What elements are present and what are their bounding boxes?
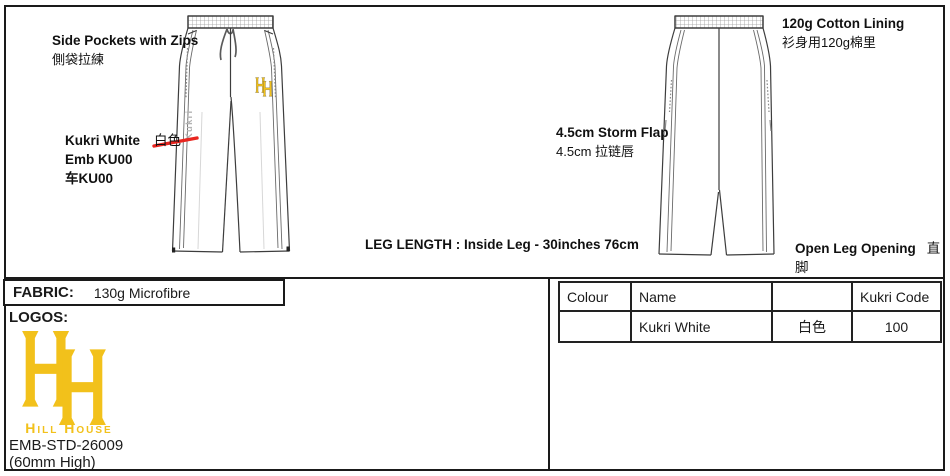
colour-table-header-name: Name xyxy=(632,283,773,312)
colour-name-cell: Kukri White xyxy=(632,312,773,341)
brand-name: Hill House xyxy=(22,420,116,436)
embroidery-colour-line3: 车KU00 xyxy=(65,169,181,188)
fabric-label: FABRIC: xyxy=(13,284,74,301)
annotation-storm-flap-en: 4.5cm Storm Flap xyxy=(556,123,669,142)
annotation-storm-flap-zh: 4.5cm 拉链唇 xyxy=(556,142,669,161)
embroidery-colour-line2: Emb KU00 xyxy=(65,150,181,169)
fabric-box: FABRIC: 130g Microfibre xyxy=(3,279,285,306)
storm-flap-stitching xyxy=(665,80,771,131)
fabric-value: 130g Microfibre xyxy=(94,285,191,301)
annotation-lining: 120g Cotton Lining 衫身用120g棉里 xyxy=(782,14,904,52)
annotation-lining-zh: 衫身用120g棉里 xyxy=(782,33,904,52)
side-seam-logo-text: Kukri xyxy=(184,110,195,140)
embroidery-colour-name-zh: 白色 xyxy=(154,133,181,148)
hill-house-monogram-mini xyxy=(256,78,273,97)
embroidery-code: EMB-STD-26009 xyxy=(9,437,123,454)
kukri-code-cell: 100 xyxy=(853,312,940,341)
annotation-leg-opening-en: Open Leg Opening xyxy=(795,241,916,256)
annotation-embroidery-colour: Kukri White白色 Emb KU00 车KU00 xyxy=(65,131,181,188)
annotation-side-pockets: Side Pockets with Zips 側袋拉練 xyxy=(52,31,198,69)
colour-table-header-colour: Colour xyxy=(560,283,632,312)
logos-label: LOGOS: xyxy=(9,309,68,326)
annotation-lining-en: 120g Cotton Lining xyxy=(782,14,904,33)
colour-swatch-cell xyxy=(560,312,632,341)
colour-name-zh-cell: 白色 xyxy=(773,312,853,341)
drawstring xyxy=(220,29,236,60)
colour-table-header-code: Kukri Code xyxy=(853,283,940,312)
annotation-storm-flap: 4.5cm Storm Flap 4.5cm 拉链唇 xyxy=(556,123,669,161)
embroidery-colour-name-en: Kukri White xyxy=(65,133,140,148)
colour-table: Colour Name Kukri Code Kukri White 白色 10… xyxy=(558,281,942,343)
annotation-side-pockets-en: Side Pockets with Zips xyxy=(52,31,198,50)
hill-house-monogram xyxy=(21,331,107,425)
annotation-leg-opening: Open Leg Opening直脚 xyxy=(795,239,950,277)
vertical-divider xyxy=(548,277,550,469)
logo-size-note: (60mm High) xyxy=(9,454,96,471)
colour-table-header-name-zh xyxy=(773,283,853,312)
back-waistband xyxy=(675,16,763,28)
trousers-back-drawing xyxy=(659,16,774,255)
spec-sheet: Kukri xyxy=(0,0,950,476)
annotation-side-pockets-zh: 側袋拉練 xyxy=(52,50,198,69)
front-waistband xyxy=(188,16,273,28)
annotation-leg-length: LEG LENGTH : Inside Leg - 30inches 76cm xyxy=(365,235,639,254)
